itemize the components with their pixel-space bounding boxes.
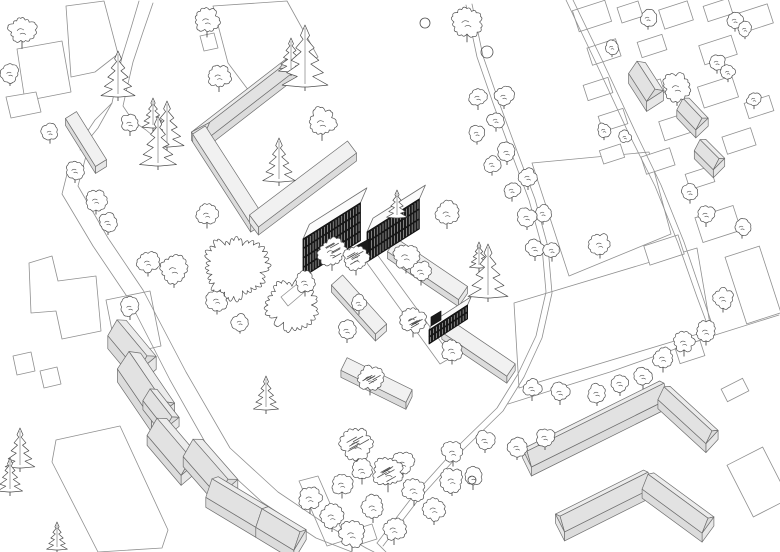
site-plan-axonometric-drawing: [0, 0, 780, 552]
site-plan-figure: [0, 0, 780, 552]
site-plan-page: [0, 0, 780, 552]
